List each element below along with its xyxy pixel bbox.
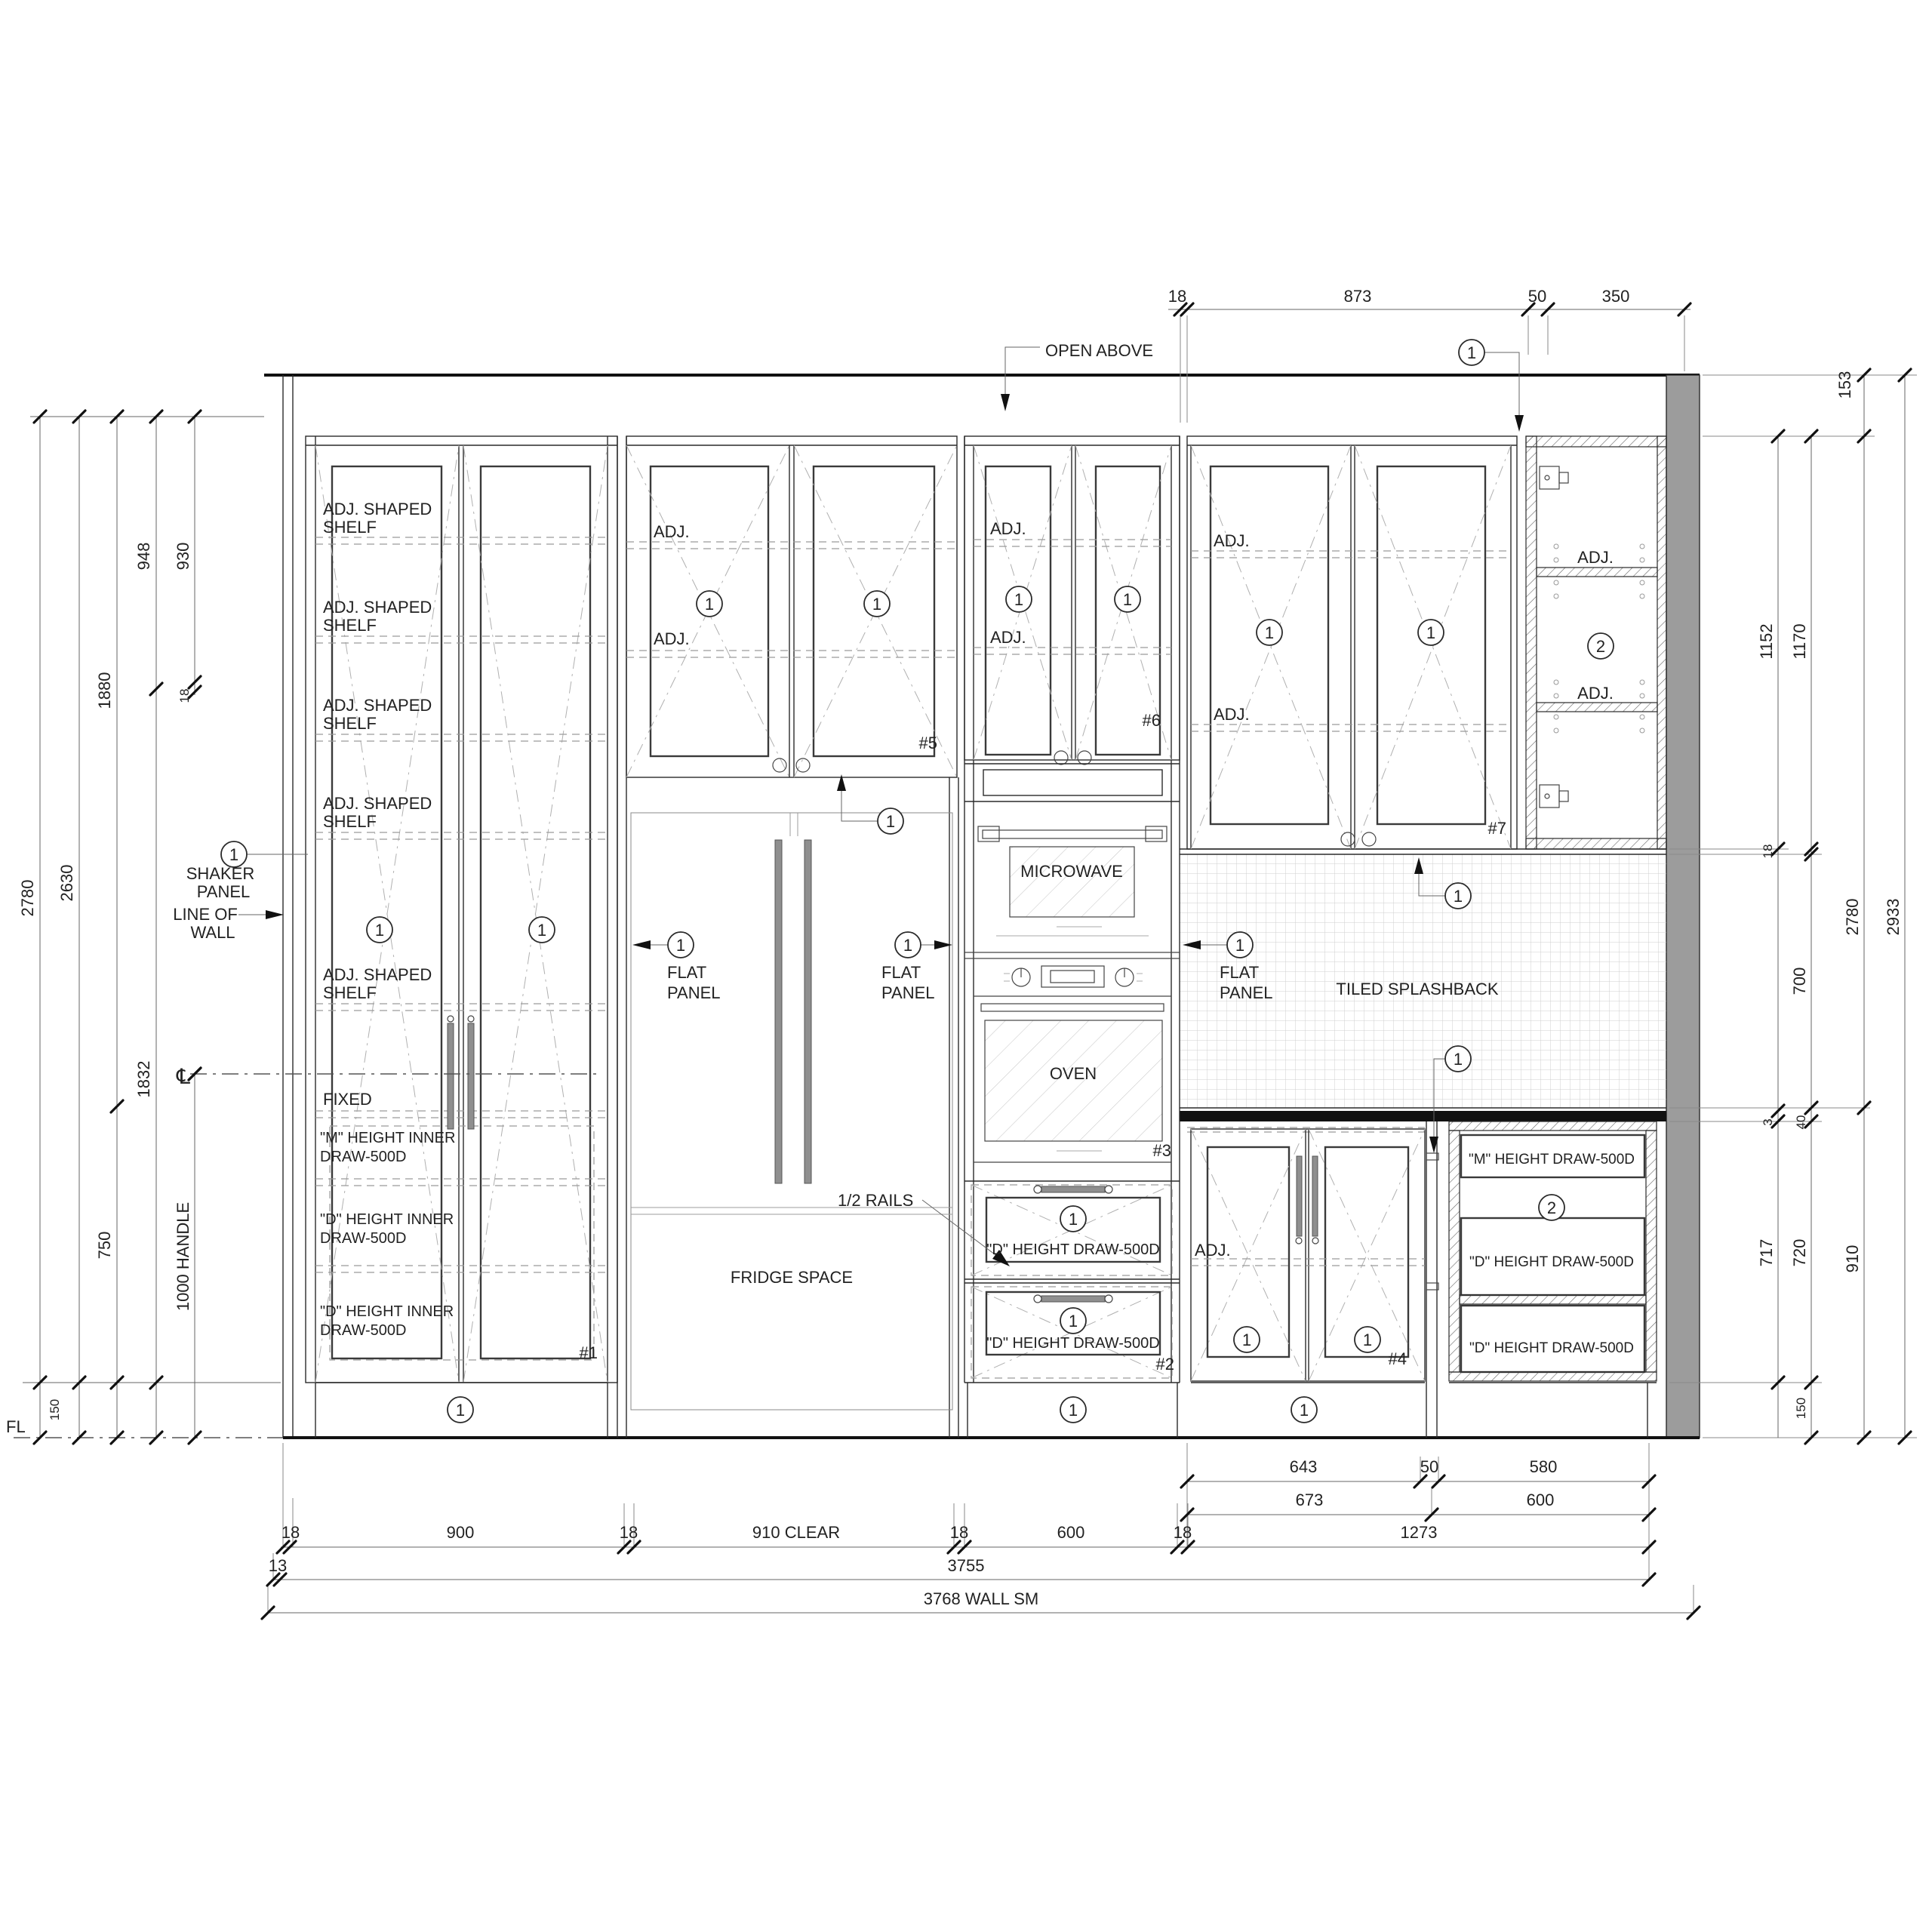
callout-number: 1 (1069, 1401, 1078, 1420)
drawing-label: 873 (1344, 287, 1372, 306)
drawing-label: 717 (1757, 1239, 1776, 1267)
drawing-label: 50 (1528, 287, 1546, 306)
callout-number: 1 (456, 1401, 465, 1420)
drawing-label: LINE OF (173, 905, 238, 924)
callout-number: 1 (886, 812, 895, 831)
drawing-label: 50 (1420, 1457, 1438, 1476)
drawing-label: 700 (1790, 968, 1809, 995)
drawing-label: 1170 (1790, 623, 1809, 659)
drawing-label: ADJ. SHAPED (323, 500, 432, 518)
drawing-label: "D" HEIGHT INNER (320, 1303, 454, 1320)
drawing-label: ADJ. SHAPED (323, 598, 432, 617)
drawing-label: ADJ. (1214, 531, 1250, 550)
drawing-label: ADJ. (1577, 548, 1614, 567)
drawing-label: 40 (1794, 1115, 1808, 1130)
drawing-label: "D" HEIGHT DRAW-500D (986, 1335, 1159, 1352)
drawing-label: 2780 (18, 880, 37, 917)
callout-number: 1 (1363, 1331, 1372, 1349)
drawing-label: 1152 (1757, 623, 1776, 659)
callout-number: 1 (1069, 1210, 1078, 1229)
drawing-label: 720 (1790, 1239, 1809, 1267)
drawing-label: 150 (1794, 1398, 1808, 1419)
drawing-label: DRAW-500D (320, 1149, 406, 1165)
drawing-label: TILED SPLASHBACK (1336, 980, 1499, 998)
drawer-unit-right (1449, 1121, 1657, 1438)
drawing-label: #4 (1389, 1349, 1407, 1368)
drawing-label: ADJ. (654, 629, 690, 648)
callout-number: 1 (537, 921, 546, 940)
drawing-label: 580 (1530, 1457, 1558, 1476)
callout-number: 1 (375, 921, 384, 940)
drawing-label: 18 (177, 689, 192, 703)
drawing-label: #6 (1143, 711, 1161, 730)
drawing-label: #7 (1488, 819, 1506, 838)
drawing-label: ℄ (176, 1065, 190, 1088)
cabinet-1-pantry (306, 436, 617, 1438)
drawing-label: "M" HEIGHT INNER (320, 1130, 455, 1146)
drawing-label: FLAT (1220, 963, 1259, 982)
callout-number: 1 (1454, 1050, 1463, 1069)
drawing-label: "D" HEIGHT DRAW-500D (986, 1241, 1159, 1258)
drawing-label: PANEL (197, 882, 251, 901)
callout-number: 1 (1265, 623, 1274, 642)
hinge-plates (1540, 466, 1568, 808)
drawing-label: PANEL (1220, 983, 1273, 1002)
base-cabinet-4 (1187, 1121, 1438, 1438)
drawing-label: 3755 (948, 1556, 985, 1575)
drawing-label: 930 (174, 543, 192, 571)
drawing-label: 150 (48, 1399, 62, 1420)
drawing-label: SHELF (323, 616, 377, 635)
drawing-label: 153 (1835, 371, 1854, 399)
microwave-appliance (964, 826, 1180, 958)
drawing-label: FLAT (667, 963, 706, 982)
drawing-label: 3768 WALL SM (924, 1589, 1038, 1608)
callout-number: 1 (1426, 623, 1435, 642)
drawing-label: #2 (1156, 1355, 1174, 1374)
drawing-label: 643 (1290, 1457, 1318, 1476)
drawing-label: ADJ. (990, 519, 1026, 538)
drawing-label: 18 (1761, 844, 1775, 859)
adjustable-shelf (1537, 703, 1657, 712)
cad-elevation-page: 1887350350OPEN ABOVE27802630188094893018… (0, 0, 1932, 1932)
drawing-label: "M" HEIGHT DRAW-500D (1469, 1152, 1635, 1168)
drawing-label: 948 (134, 543, 153, 571)
drawing-label: 18 (620, 1523, 638, 1542)
callout-number: 1 (1300, 1401, 1309, 1420)
drawing-label: OPEN ABOVE (1045, 341, 1153, 360)
drawing-label: SHELF (323, 812, 377, 831)
drawing-label: FIXED (323, 1090, 372, 1109)
drawing-label: 13 (269, 1556, 287, 1575)
drawing-label: DRAW-500D (320, 1230, 406, 1247)
callout-number: 2 (1596, 637, 1605, 656)
drawing-label: ADJ. SHAPED (323, 794, 432, 813)
drawing-label: ADJ. SHAPED (323, 965, 432, 984)
callout-number: 1 (229, 845, 238, 864)
drawing-label: ADJ. (1577, 684, 1614, 703)
callout-number: 1 (1235, 936, 1244, 955)
drawing-label: 18 (281, 1523, 300, 1542)
callout-number: 1 (1242, 1331, 1251, 1349)
drawing-label: ADJ. (1195, 1241, 1231, 1260)
drawing-label: SHAKER (186, 864, 254, 883)
drawing-label: 1832 (134, 1061, 153, 1098)
callout-number: 1 (705, 595, 714, 614)
callout-number: 1 (872, 595, 881, 614)
drawing-label: 18 (1174, 1523, 1192, 1542)
drawing-label: 350 (1602, 287, 1630, 306)
drawing-label: 910 CLEAR (752, 1523, 840, 1542)
drawing-label: PANEL (881, 983, 935, 1002)
drawing-label: 1273 (1401, 1523, 1438, 1542)
pantry-handles (448, 1016, 474, 1129)
wall-section-cut (1666, 375, 1700, 1438)
drawing-label: ADJ. (990, 628, 1026, 647)
drawing-label: 18 (1168, 287, 1186, 306)
callout-number: 1 (903, 936, 912, 955)
callout-number: 1 (1014, 590, 1023, 609)
callout-number: 1 (676, 936, 685, 955)
drawing-label: "D" HEIGHT DRAW-500D (1469, 1254, 1634, 1270)
drawing-label: 18 (950, 1523, 968, 1542)
callout-number: 1 (1123, 590, 1132, 609)
drawing-label: 750 (95, 1232, 114, 1260)
drawing-label: MICROWAVE (1020, 862, 1123, 881)
drawing-label: 673 (1296, 1491, 1324, 1509)
drawing-label: "D" HEIGHT DRAW-500D (1469, 1340, 1634, 1356)
drawing-label: ADJ. SHAPED (323, 696, 432, 715)
drawing-label: FLAT (881, 963, 921, 982)
drawing-label: ADJ. (654, 522, 690, 541)
drawing-label: 2780 (1843, 899, 1862, 936)
drawing-label: 2630 (57, 865, 76, 902)
drawing-label: #3 (1153, 1141, 1171, 1160)
adjustable-shelf (1537, 568, 1657, 577)
drawing-label: FRIDGE SPACE (731, 1268, 853, 1287)
drawing-label: 900 (447, 1523, 475, 1542)
drawing-label: 2933 (1884, 899, 1903, 936)
callout-number: 2 (1547, 1198, 1556, 1217)
drawing-label: OVEN (1050, 1064, 1097, 1083)
drawing-label: PANEL (667, 983, 721, 1002)
drawing-label: SHELF (323, 983, 377, 1002)
cabinet-7-upper (1187, 436, 1517, 849)
fridge (631, 813, 952, 1410)
callout-number: 1 (1069, 1312, 1078, 1331)
drawing-label: SHELF (323, 518, 377, 537)
drawing-label: #1 (580, 1343, 598, 1362)
callout-number: 1 (1454, 887, 1463, 906)
drawing-label: 3 (1761, 1118, 1775, 1125)
cabinet-5-over-fridge (626, 436, 957, 777)
callout-number: 1 (1467, 343, 1476, 362)
drawing-label: 1/2 RAILS (838, 1191, 913, 1210)
drawing-label: 1880 (95, 672, 114, 709)
drawing-label: 910 (1843, 1245, 1862, 1273)
drawing-label: "D" HEIGHT INNER (320, 1211, 454, 1228)
drawing-label: 600 (1527, 1491, 1555, 1509)
drawing-label: DRAW-500D (320, 1322, 406, 1339)
drawing-label: SHELF (323, 714, 377, 733)
drawing-label: FL (6, 1417, 26, 1436)
drawing-label: ADJ. (1214, 705, 1250, 724)
elevation-drawing: 1887350350OPEN ABOVE27802630188094893018… (0, 0, 1932, 1932)
oven-column (964, 436, 1180, 1438)
drawing-label: 600 (1057, 1523, 1085, 1542)
drawing-label: 1000 HANDLE (174, 1202, 192, 1311)
drawing-label: #5 (919, 734, 937, 752)
drawing-label: WALL (190, 923, 235, 942)
